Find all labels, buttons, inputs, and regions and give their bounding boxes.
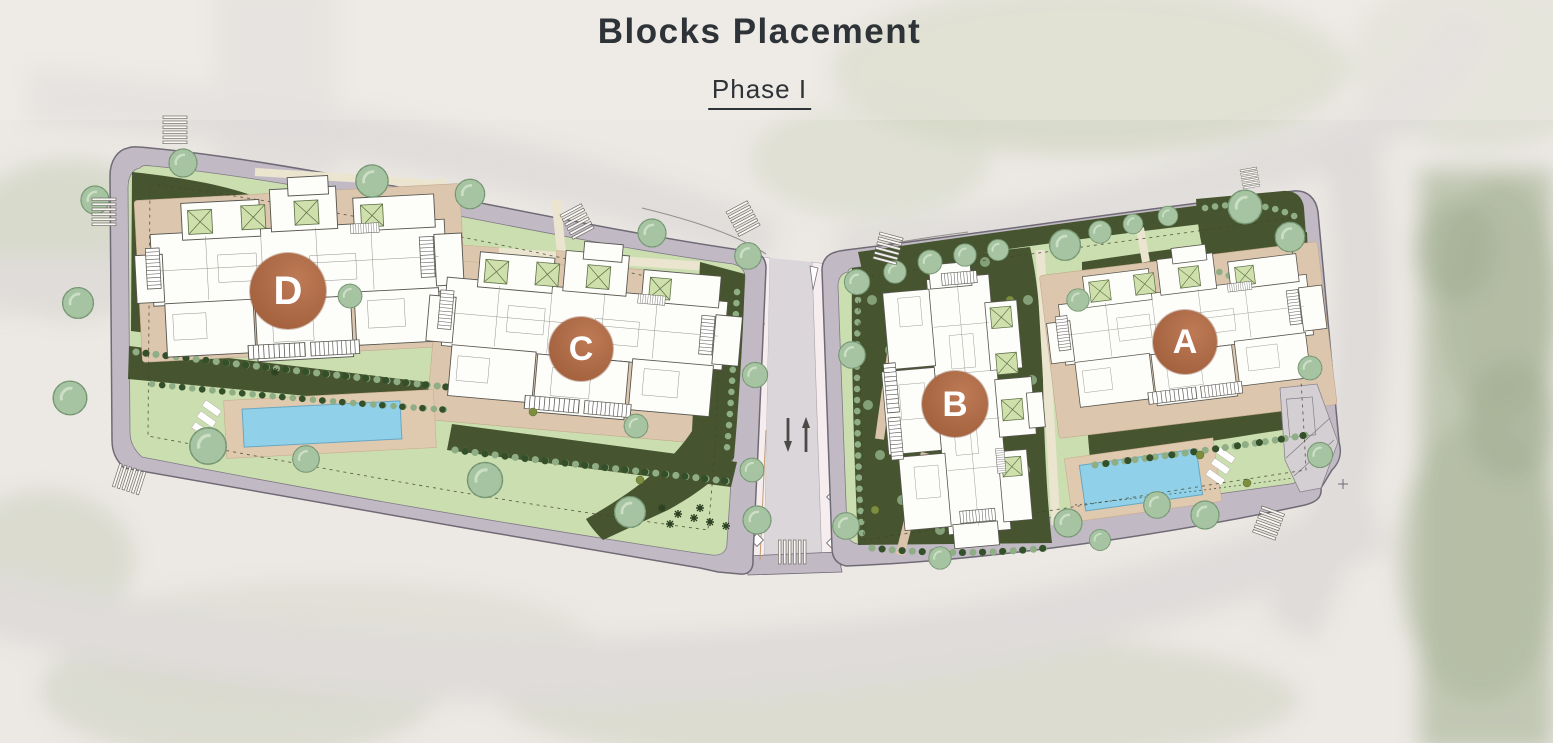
masterplan-svg <box>0 0 1553 743</box>
block-letter: D <box>274 271 303 311</box>
block-marker-a[interactable]: A <box>1153 310 1217 374</box>
block-marker-d[interactable]: D <box>250 253 326 329</box>
block-letter: B <box>942 387 967 422</box>
block-letter: C <box>569 332 594 366</box>
masterplan-page: D C B A Blocks Placement Phase I <box>0 0 1553 743</box>
pool-west-water <box>242 401 402 447</box>
plan-header: Blocks Placement Phase I <box>598 12 922 110</box>
page-title: Blocks Placement <box>598 12 922 52</box>
block-letter: A <box>1173 325 1198 359</box>
block-marker-b[interactable]: B <box>922 371 988 437</box>
phase-label: Phase I <box>708 74 811 110</box>
block-marker-c[interactable]: C <box>549 317 613 381</box>
